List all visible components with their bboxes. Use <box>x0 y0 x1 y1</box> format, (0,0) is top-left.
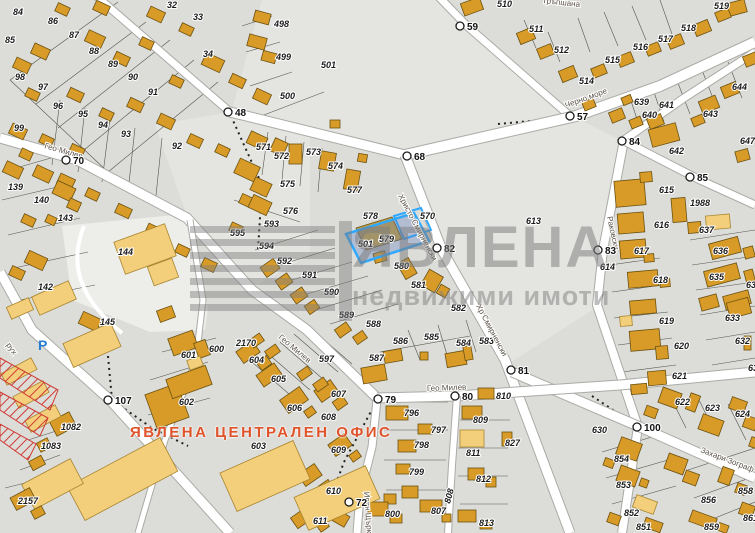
parcel-number: 96 <box>53 101 64 111</box>
node-number: 80 <box>462 392 474 403</box>
node-marker <box>62 156 70 164</box>
parcel-number: 90 <box>128 72 138 82</box>
parcel-number: 511 <box>529 24 543 34</box>
parcel-number: 641 <box>659 100 674 110</box>
parcel-number: 145 <box>100 317 116 327</box>
building <box>647 370 666 386</box>
parcel-number: 622 <box>675 397 690 407</box>
building <box>478 388 494 399</box>
parcel-number: 88 <box>89 46 99 56</box>
parcel-number: 620 <box>674 341 689 351</box>
parcel-number: 852 <box>624 508 639 518</box>
building <box>169 75 185 89</box>
parcel-number: 500 <box>280 91 295 101</box>
parcel-number: 579 <box>379 234 394 244</box>
building <box>334 322 351 338</box>
building <box>620 315 633 326</box>
building <box>614 179 646 208</box>
node-number: 68 <box>414 152 426 163</box>
parcel-number: 97 <box>38 82 49 92</box>
parcel-number: 631 <box>748 363 755 373</box>
parcel-number: 609 <box>331 445 346 455</box>
parcel-number: 94 <box>98 120 108 130</box>
parcel-number: 642 <box>669 146 684 156</box>
building <box>85 188 101 202</box>
parcel-number: 582 <box>451 303 466 313</box>
building <box>743 246 755 259</box>
building <box>718 466 735 485</box>
parcel-number: 91 <box>148 87 158 97</box>
parcel-number: 636 <box>713 246 729 256</box>
building <box>402 486 418 498</box>
node-marker <box>633 423 641 431</box>
parcel-number: 581 <box>411 280 426 290</box>
parcel-number: 606 <box>287 403 303 413</box>
parcel-number: 144 <box>118 247 133 257</box>
building <box>629 299 656 315</box>
parcel-number: 798 <box>414 440 429 450</box>
parcel-number: 86 <box>48 16 59 26</box>
parcel-number: 637 <box>699 225 715 235</box>
parcel-number: 607 <box>331 389 347 399</box>
building <box>383 349 403 364</box>
building <box>644 405 659 419</box>
parcel-number: 639 <box>634 97 649 107</box>
parcel-number: 608 <box>321 412 336 422</box>
node-marker <box>686 173 694 181</box>
parcel-number: 610 <box>326 486 341 496</box>
node-marker <box>618 137 626 145</box>
parcel-number: 587 <box>369 353 385 363</box>
building <box>146 6 165 23</box>
parcel-number: 87 <box>69 30 80 40</box>
parcel-number: 611 <box>313 516 327 526</box>
parcel-boundary <box>58 40 170 128</box>
building <box>353 330 368 344</box>
parcel-number: 800 <box>385 509 400 519</box>
parcel-number: 854 <box>614 454 629 464</box>
parcel-number: 92 <box>172 141 182 151</box>
parcel-number: 640 <box>642 110 657 120</box>
node-number: 82 <box>444 244 456 255</box>
parcel-number: 577 <box>347 185 363 195</box>
building <box>671 197 687 222</box>
building <box>357 153 367 162</box>
parcel-number: 604 <box>249 355 264 365</box>
parcel-number: 600 <box>209 344 224 354</box>
building <box>127 97 145 112</box>
building <box>30 43 50 60</box>
parcel-number: 33 <box>193 12 203 22</box>
parcel-number: 571 <box>256 142 271 152</box>
parcel-number: 601 <box>181 350 196 360</box>
node-marker <box>594 246 602 254</box>
building <box>304 406 317 418</box>
parcel-number: 93 <box>121 129 131 139</box>
building <box>24 250 48 270</box>
node-number: 81 <box>518 366 530 377</box>
parcel-number: 859 <box>704 522 719 532</box>
parcel-number: 603 <box>251 441 266 451</box>
parcel-number: 621 <box>672 371 687 381</box>
building <box>275 273 293 290</box>
building <box>115 203 133 218</box>
parcel-number: 614 <box>600 262 615 272</box>
parcel-boundary <box>578 18 590 52</box>
building <box>304 299 320 314</box>
street-name: рух <box>4 341 18 356</box>
building <box>290 287 308 304</box>
parcel-number: 1083 <box>41 441 61 451</box>
node-marker <box>403 152 411 160</box>
node-marker <box>224 108 232 116</box>
building <box>460 0 483 16</box>
parcel-number: 515 <box>605 55 621 65</box>
parcel-number: 589 <box>339 310 354 320</box>
node-number: 84 <box>629 137 641 148</box>
parcel-number: 573 <box>306 147 321 157</box>
building <box>631 383 648 394</box>
parcel-number: 634 <box>746 280 755 290</box>
building <box>2 161 23 179</box>
parcel-number: 616 <box>654 220 670 230</box>
parcel-number: 142 <box>38 282 53 292</box>
building <box>664 453 688 475</box>
parcel-number: 861 <box>743 513 755 523</box>
building <box>640 171 653 182</box>
building <box>749 437 755 450</box>
parcel-number: 827 <box>505 438 521 448</box>
parcel-boundary <box>155 138 162 205</box>
cadastral-map-layer: 8486878588899091989796959493999232333413… <box>0 0 755 533</box>
parcel-number: 2157 <box>17 496 39 506</box>
parcel-number: 1082 <box>61 422 81 432</box>
parcel-boundary <box>632 6 646 40</box>
node-number: 57 <box>577 112 589 123</box>
parcel-number: 95 <box>78 109 89 119</box>
parcel-number: 2170 <box>235 338 256 348</box>
parcel-number: 853 <box>616 480 631 490</box>
parcel-number: 812 <box>476 474 491 484</box>
node-number: 48 <box>235 108 247 119</box>
parcel-number: 813 <box>479 518 494 528</box>
parcel-number: 809 <box>473 415 488 425</box>
street-name: Тръпшана <box>542 0 581 9</box>
building <box>418 424 432 434</box>
building <box>67 87 85 102</box>
street-name: Гео Милев <box>427 383 467 393</box>
parcel-boundary <box>660 0 672 34</box>
building <box>682 470 699 486</box>
parcel-number: 576 <box>283 206 299 216</box>
building <box>536 44 554 60</box>
building <box>179 23 195 37</box>
node-marker <box>345 498 353 506</box>
parcel-number: 617 <box>634 246 650 256</box>
building <box>67 438 178 521</box>
building <box>608 108 625 123</box>
building <box>698 414 724 437</box>
parcel-number: 592 <box>277 256 292 266</box>
parcel-number: 602 <box>179 397 194 407</box>
building <box>396 464 410 474</box>
parcel-number: 647 <box>740 136 755 146</box>
parcel-number: 593 <box>264 219 279 229</box>
parcel-number: 575 <box>280 179 296 189</box>
parcel-number: 856 <box>701 495 717 505</box>
parcel-number: 613 <box>526 216 541 226</box>
parcel-boundary <box>622 365 676 372</box>
parcel-number: 618 <box>653 275 668 285</box>
node-marker <box>374 395 382 403</box>
parcel-number: 632 <box>735 336 750 346</box>
parcel-number: 585 <box>424 332 440 342</box>
parcel-number: 644 <box>732 82 747 92</box>
parcel-number: 624 <box>735 409 750 419</box>
node-marker <box>566 112 574 120</box>
building <box>28 455 45 470</box>
building <box>420 352 428 360</box>
parcel-number: 799 <box>409 467 424 477</box>
parcel-number: 810 <box>496 391 511 401</box>
selected-parcel-number: 501 <box>358 239 373 249</box>
parcel-number: 594 <box>259 241 274 251</box>
building <box>330 120 340 128</box>
parcel-number: 510 <box>497 0 512 9</box>
parcel-boundary <box>604 12 618 46</box>
parcel-number: 615 <box>659 185 675 195</box>
parcel-number: 619 <box>659 316 674 326</box>
node-number: 79 <box>385 395 397 406</box>
parcel-number: 574 <box>328 161 343 171</box>
parcel-number: 797 <box>431 425 447 435</box>
node-marker <box>456 22 464 30</box>
node-number: 59 <box>467 22 479 33</box>
parcel-number: 517 <box>658 34 674 44</box>
building <box>9 266 26 281</box>
parcel-number: 32 <box>167 0 177 10</box>
parcel-number: 590 <box>324 287 339 297</box>
parcel-number: 807 <box>431 506 447 516</box>
parcel-number: 143 <box>58 213 73 223</box>
node-marker <box>104 396 112 404</box>
building <box>558 65 577 82</box>
node-number: 70 <box>73 156 85 167</box>
building <box>31 506 46 520</box>
node-number: 100 <box>644 423 661 434</box>
parcel-number: 518 <box>681 23 696 33</box>
parcel-number: 140 <box>34 195 49 205</box>
parcel-number: 605 <box>271 374 287 384</box>
parcel-number: 635 <box>709 272 725 282</box>
parcel-number: 519 <box>714 1 729 11</box>
node-number: 85 <box>697 173 709 184</box>
building <box>617 212 645 234</box>
parcel-number: 597 <box>319 354 335 364</box>
parcel-number: 643 <box>703 109 718 119</box>
parcel-number: 516 <box>633 42 649 52</box>
building <box>655 346 668 360</box>
parcel-number: 34 <box>203 49 213 59</box>
parcel-number: 89 <box>108 59 118 69</box>
parcel-boundary <box>285 262 352 282</box>
parcel-number: 572 <box>274 151 289 161</box>
parcel-number: 499 <box>275 52 291 62</box>
parcel-number: 98 <box>15 72 25 82</box>
parcel-number: 514 <box>579 76 594 86</box>
parcel-number: 580 <box>394 261 409 271</box>
building <box>458 510 476 522</box>
parcel-number: 630 <box>592 425 607 435</box>
building <box>21 214 37 228</box>
building <box>32 165 53 183</box>
node-marker <box>451 392 459 400</box>
building <box>699 294 720 311</box>
parcel-number: 84 <box>13 7 23 17</box>
parcel-number: 570 <box>420 211 435 221</box>
building <box>460 430 484 447</box>
parcel-number: 595 <box>230 228 246 238</box>
parcel-number: 623 <box>705 403 720 413</box>
parcel-number: 584 <box>456 338 471 348</box>
node-number: 107 <box>115 396 132 407</box>
building <box>735 149 750 163</box>
parcel-number: 586 <box>393 336 409 346</box>
parcel-number: 588 <box>366 319 381 329</box>
parcel-number: 796 <box>404 408 420 418</box>
parcel-number: 498 <box>273 19 289 29</box>
parcel-number: 851 <box>636 522 651 532</box>
parcel-number: 85 <box>5 35 16 45</box>
building <box>289 144 302 164</box>
parcel-number: 633 <box>725 313 740 323</box>
parcel-number: 99 <box>14 123 24 133</box>
parcel-number: 578 <box>363 211 378 221</box>
building <box>55 3 71 17</box>
node-number: 83 <box>605 246 617 257</box>
parcel-number: 811 <box>466 448 480 458</box>
parcel-number: 139 <box>8 182 23 192</box>
building <box>639 478 649 488</box>
parcel-number: 501 <box>321 60 336 70</box>
parcel-number: 1988 <box>690 198 710 208</box>
parcel-number: 512 <box>554 45 569 55</box>
parcel-number: 858 <box>738 486 753 496</box>
map-canvas[interactable]: 8486878588899091989796959493999232333413… <box>0 0 755 533</box>
node-number: 72 <box>356 498 368 509</box>
building <box>201 258 218 273</box>
building <box>361 364 387 384</box>
node-marker <box>507 366 515 374</box>
parcel-number: 591 <box>302 270 317 280</box>
node-marker <box>433 244 441 252</box>
